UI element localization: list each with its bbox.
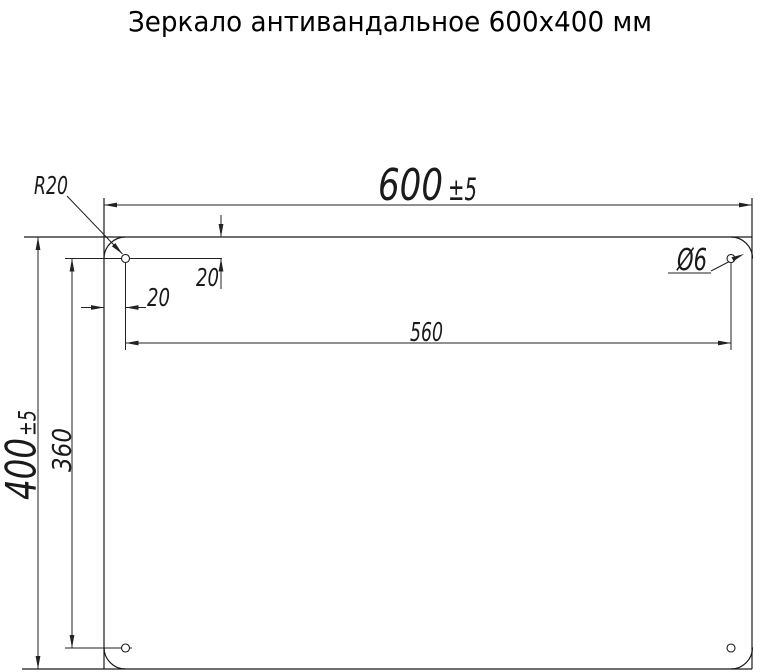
label-corner-radius: R20 xyxy=(34,171,68,200)
dim-text-height-group: 400 ±5 xyxy=(0,410,46,500)
dim-text-width-value: 600 xyxy=(378,160,443,211)
dim-text-hole-spacing-vertical: 360 xyxy=(48,428,78,472)
mounting-hole-bottom-right xyxy=(727,644,735,652)
drawing-page: Зеркало антивандальное 600х400 мм xyxy=(0,0,760,672)
mounting-hole-top-left xyxy=(122,255,130,263)
dim-text-hole-offset-left: 20 xyxy=(147,283,170,312)
corner-arc-top-left xyxy=(104,237,126,259)
dim-text-hole-offset-top: 20 xyxy=(196,263,219,292)
technical-drawing: Зеркало антивандальное 600х400 мм xyxy=(0,0,760,672)
dim-text-height-value: 400 xyxy=(0,438,46,500)
mounting-hole-bottom-left xyxy=(122,644,130,652)
dim-text-hole-spacing-horizontal: 560 xyxy=(410,318,443,348)
dim-text-width-tolerance: ±5 xyxy=(448,172,477,208)
dim-text-height-tolerance: ±5 xyxy=(14,410,42,436)
label-hole-diameter: Ø6 xyxy=(676,243,707,278)
drawing-title: Зеркало антивандальное 600х400 мм xyxy=(128,5,652,38)
